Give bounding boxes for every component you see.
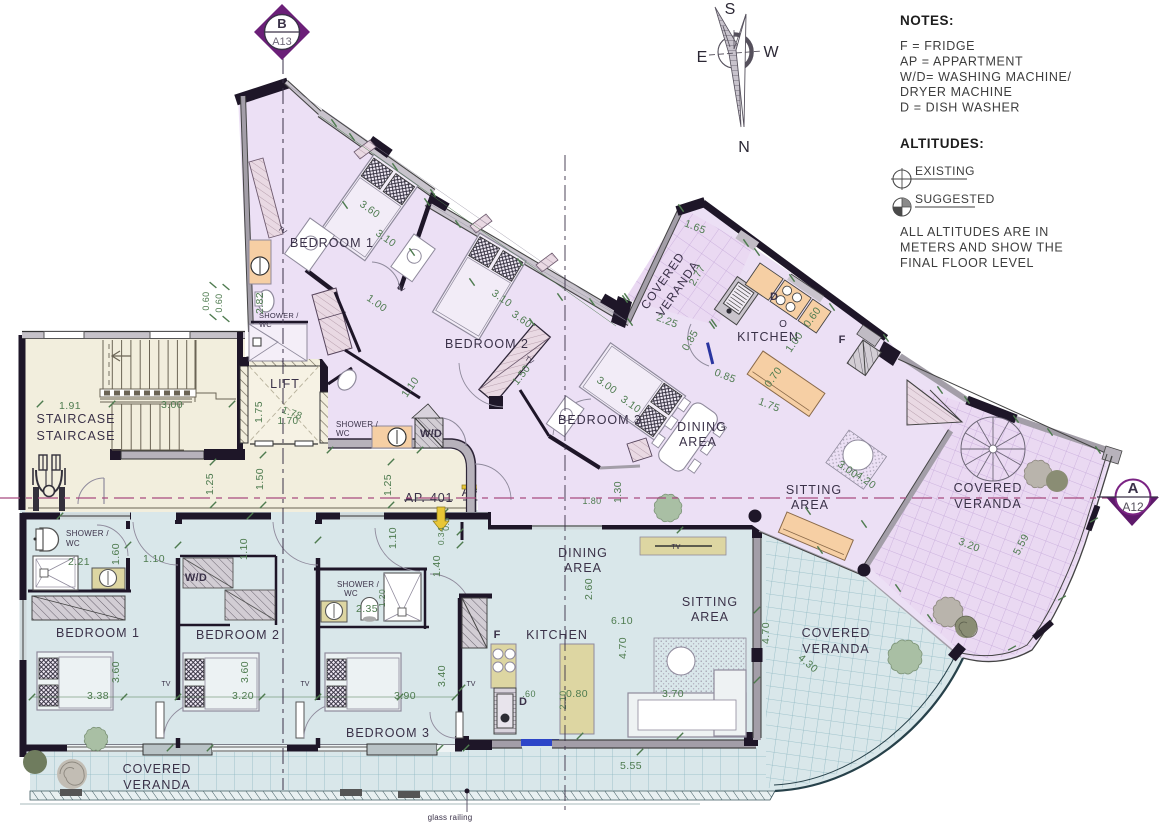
- svg-text:W: W: [763, 44, 779, 61]
- svg-text:1.25: 1.25: [204, 473, 216, 495]
- svg-text:2.35: 2.35: [356, 603, 378, 615]
- svg-text:WC: WC: [336, 429, 350, 438]
- svg-text:5.55: 5.55: [620, 760, 642, 772]
- svg-text:W/D: W/D: [185, 572, 207, 584]
- svg-text:SHOWER /: SHOWER /: [66, 529, 109, 538]
- svg-text:W/D= WASHING MACHINE/: W/D= WASHING MACHINE/: [900, 70, 1072, 84]
- svg-text:BEDROOM 1: BEDROOM 1: [290, 236, 374, 250]
- svg-text:F: F: [494, 629, 501, 641]
- svg-text:A: A: [1128, 480, 1139, 497]
- svg-text:AREA: AREA: [564, 561, 602, 575]
- svg-text:WC: WC: [66, 539, 80, 548]
- svg-text:D: D: [770, 291, 778, 303]
- svg-text:DINING: DINING: [677, 420, 727, 434]
- svg-text:3.70: 3.70: [662, 688, 684, 700]
- svg-text:NOTES:: NOTES:: [900, 13, 954, 28]
- svg-text:TV: TV: [467, 681, 476, 688]
- svg-text:O: O: [779, 319, 787, 330]
- svg-text:2.10: 2.10: [558, 690, 568, 709]
- svg-text:1.25: 1.25: [382, 474, 394, 496]
- svg-text:COVERED: COVERED: [802, 626, 871, 640]
- svg-text:1.50: 1.50: [254, 468, 266, 490]
- svg-text:4.70: 4.70: [760, 622, 772, 644]
- svg-text:COVERED: COVERED: [123, 762, 192, 776]
- svg-text:1.40: 1.40: [431, 555, 443, 577]
- svg-text:glass railing: glass railing: [428, 813, 473, 822]
- svg-text:COVERED: COVERED: [954, 481, 1023, 495]
- svg-text:SUGGESTED: SUGGESTED: [915, 192, 995, 206]
- svg-text:3.00: 3.00: [161, 399, 183, 411]
- svg-text:1.91: 1.91: [59, 400, 81, 412]
- svg-text:SITTING: SITTING: [682, 595, 738, 609]
- svg-text:WC: WC: [344, 589, 358, 598]
- svg-text:FINAL FLOOR LEVEL: FINAL FLOOR LEVEL: [900, 256, 1034, 270]
- svg-text:3.60: 3.60: [239, 661, 251, 683]
- svg-text:BEDROOM 3: BEDROOM 3: [558, 413, 642, 427]
- svg-text:SHOWER /: SHOWER /: [337, 580, 380, 589]
- svg-text:AREA: AREA: [679, 435, 717, 449]
- svg-text:1.75: 1.75: [253, 401, 265, 423]
- svg-text:1.10: 1.10: [387, 527, 399, 549]
- svg-text:2.21: 2.21: [68, 556, 90, 568]
- svg-text:TV: TV: [162, 681, 171, 688]
- svg-text:W/D: W/D: [420, 428, 442, 440]
- svg-text:S: S: [725, 1, 736, 18]
- svg-text:E: E: [697, 49, 708, 66]
- svg-text:N: N: [738, 139, 750, 156]
- svg-text:D = DISH WASHER: D = DISH WASHER: [900, 101, 1020, 115]
- svg-text:METERS AND SHOW THE: METERS AND SHOW THE: [900, 240, 1063, 254]
- svg-text:0.60: 0.60: [214, 293, 224, 312]
- svg-text:WC: WC: [259, 320, 272, 329]
- svg-text:BEDROOM 2: BEDROOM 2: [196, 628, 280, 642]
- svg-text:BEDROOM 2: BEDROOM 2: [445, 337, 529, 351]
- svg-text:1.30: 1.30: [612, 481, 624, 503]
- svg-text:SITTING: SITTING: [786, 483, 842, 497]
- svg-text:ALTITUDES:: ALTITUDES:: [900, 136, 984, 151]
- svg-text:6.10: 6.10: [611, 615, 633, 627]
- svg-text:DINING: DINING: [558, 546, 608, 560]
- svg-text:VERANDA: VERANDA: [802, 642, 869, 656]
- svg-text:STAIRCASE: STAIRCASE: [37, 429, 116, 443]
- svg-text:F = FRIDGE: F = FRIDGE: [900, 39, 975, 53]
- svg-text:TV: TV: [301, 681, 310, 688]
- svg-text:B: B: [277, 16, 286, 31]
- svg-text:3.40: 3.40: [436, 665, 448, 687]
- svg-text:LIFT: LIFT: [270, 377, 300, 391]
- svg-text:1.10: 1.10: [143, 553, 165, 565]
- svg-text:A12: A12: [1122, 500, 1144, 514]
- svg-text:DRYER MACHINE: DRYER MACHINE: [900, 85, 1012, 99]
- svg-text:1.60: 1.60: [110, 543, 122, 565]
- svg-text:AREA: AREA: [791, 498, 829, 512]
- svg-text:VERANDA: VERANDA: [954, 497, 1021, 511]
- svg-text:AP = APPARTMENT: AP = APPARTMENT: [900, 54, 1023, 68]
- svg-text:EXISTING: EXISTING: [915, 164, 975, 178]
- svg-text:STAIRCASE: STAIRCASE: [37, 412, 116, 426]
- svg-text:3.60: 3.60: [110, 661, 122, 683]
- svg-text:1.10: 1.10: [238, 538, 250, 560]
- svg-text:BEDROOM 1: BEDROOM 1: [56, 626, 140, 640]
- svg-text:3.38: 3.38: [87, 690, 109, 702]
- svg-text:AREA: AREA: [691, 610, 729, 624]
- svg-text:ALL ALTITUDES ARE IN: ALL ALTITUDES ARE IN: [900, 225, 1049, 239]
- svg-text:SHOWER /: SHOWER /: [336, 420, 379, 429]
- svg-text:0.80: 0.80: [566, 688, 588, 700]
- svg-text:3.20: 3.20: [232, 690, 254, 702]
- svg-text:1.70: 1.70: [277, 416, 298, 427]
- svg-text:0.34: 0.34: [436, 527, 446, 545]
- svg-text:VERANDA: VERANDA: [123, 778, 190, 792]
- svg-text:2.82: 2.82: [254, 292, 266, 314]
- svg-text:A13: A13: [272, 36, 292, 48]
- svg-text:TV: TV: [672, 544, 681, 551]
- svg-text:KITCHEN: KITCHEN: [526, 628, 588, 642]
- svg-text:.60: .60: [522, 689, 536, 699]
- svg-text:1.20: 1.20: [377, 589, 387, 607]
- svg-text:0.60: 0.60: [201, 291, 211, 310]
- svg-text:F: F: [839, 334, 846, 346]
- svg-text:BEDROOM 3: BEDROOM 3: [346, 726, 430, 740]
- svg-text:4.70: 4.70: [617, 637, 629, 659]
- svg-text:2.60: 2.60: [583, 578, 595, 600]
